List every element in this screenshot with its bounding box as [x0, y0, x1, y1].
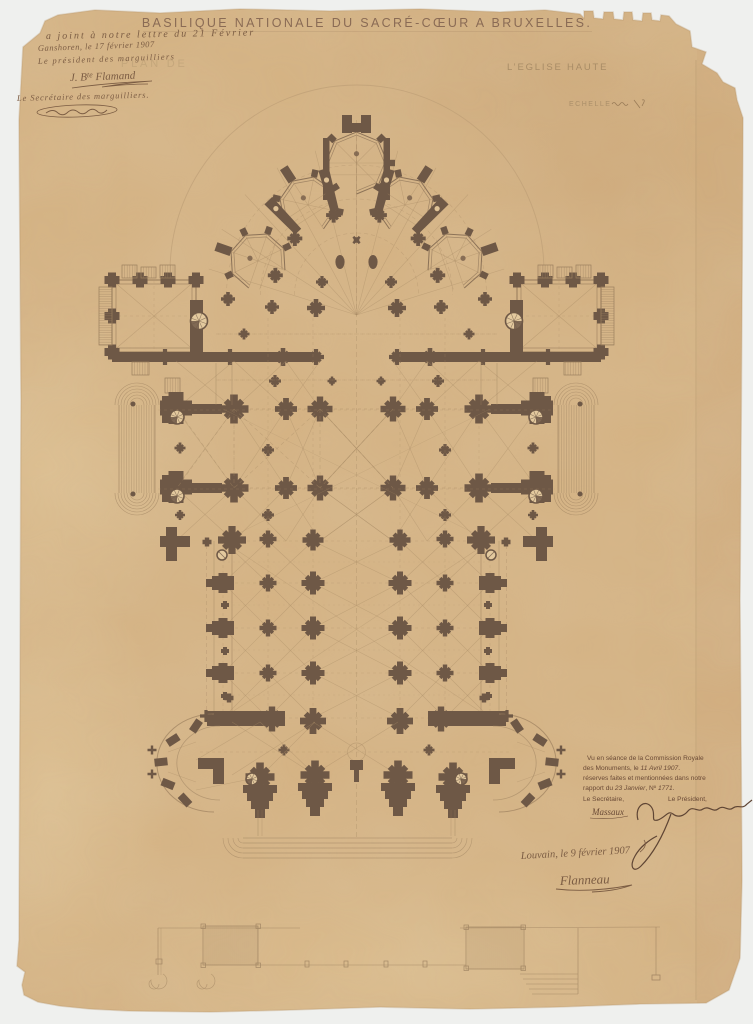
svg-text:ECHELLE: ECHELLE	[569, 101, 611, 108]
svg-text:rapport du 23 Janvier, Nº 1771: rapport du 23 Janvier, Nº 1771.	[583, 785, 675, 792]
svg-text:L’EGLISE HAUTE: L’EGLISE HAUTE	[507, 62, 608, 73]
svg-text:J. Bte Flamand: J. Bte Flamand	[70, 69, 136, 84]
svg-text:Le Secrétaire,: Le Secrétaire,	[583, 796, 624, 803]
svg-text:Vu en séance de la Commission: Vu en séance de la Commission Royale	[587, 755, 704, 762]
svg-text:des Monuments, le 11 Avril 190: des Monuments, le 11 Avril 1907.	[583, 765, 680, 772]
svg-text:Le Président,: Le Président,	[668, 796, 707, 803]
svg-text:Flanneau: Flanneau	[559, 871, 611, 888]
svg-text:réserves faites et mentionnées: réserves faites et mentionnées dans notr…	[583, 775, 706, 782]
svg-text:Massaux: Massaux	[591, 807, 624, 817]
